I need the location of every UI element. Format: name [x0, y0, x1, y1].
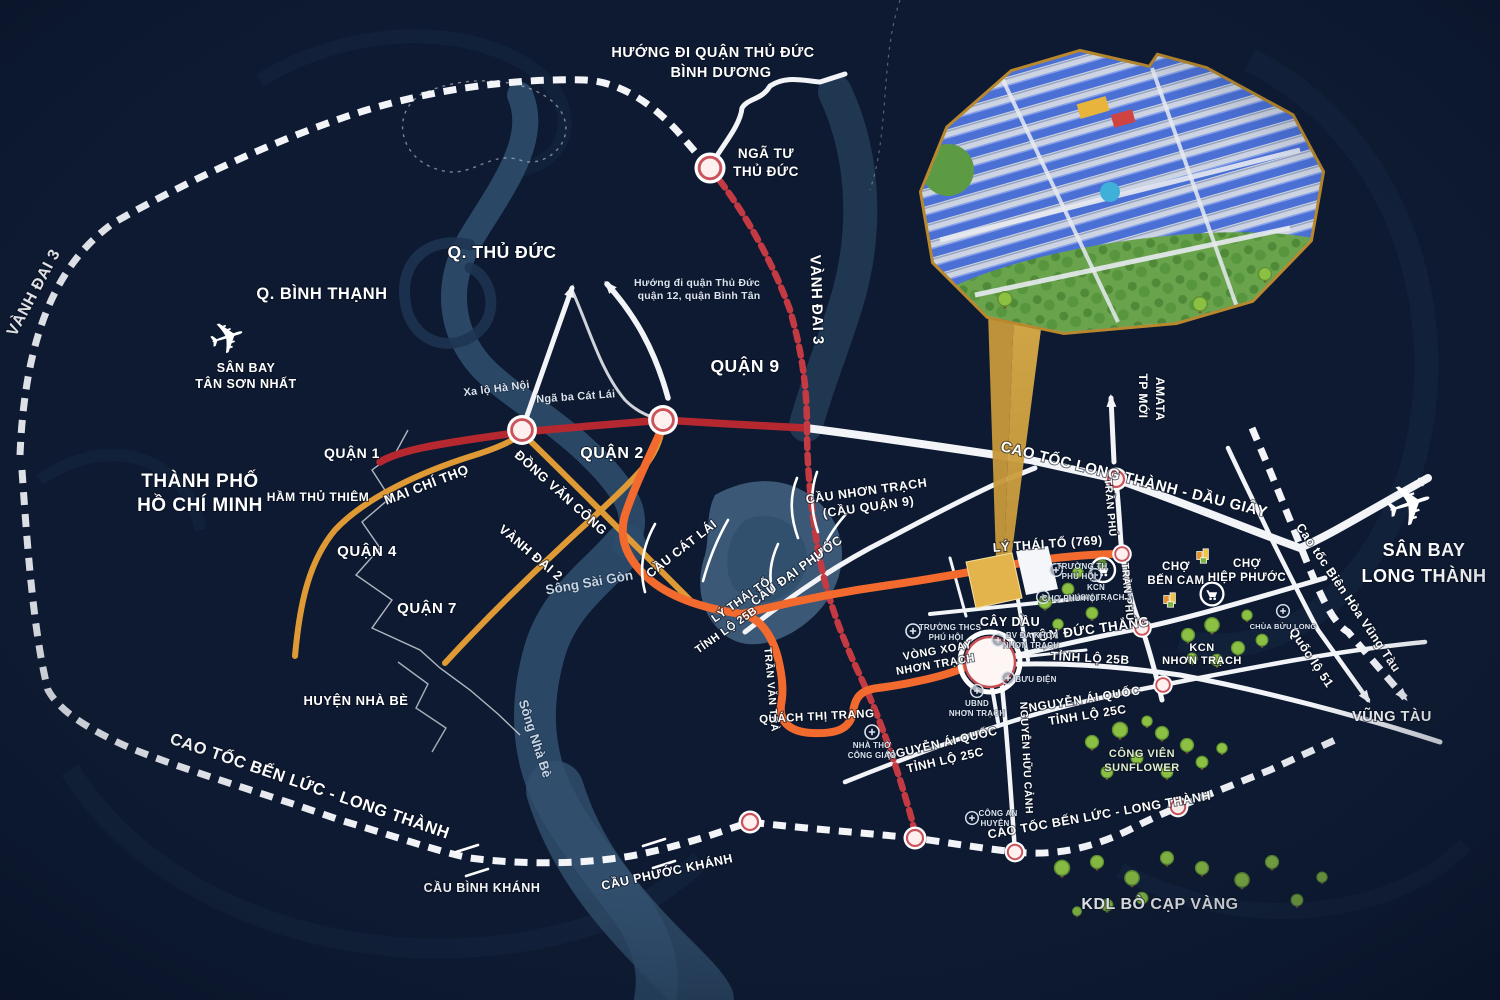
poi-cong-an-1: CÔNG AN	[979, 809, 1018, 818]
road-amata-arrow	[1111, 398, 1114, 462]
direction-north-line1: HƯỚNG ĐI QUẬN THỦ ĐỨC	[611, 43, 814, 61]
poi-cv-sunflower-1: CÔNG VIÊN	[1109, 747, 1175, 760]
direction-vung-tau-label: VŨNG TÀU	[1352, 707, 1432, 725]
city-hcmc-line2: HỒ CHÍ MINH	[137, 494, 263, 516]
junction-nga-tu-thu-duc-2: THỦ ĐỨC	[733, 164, 799, 179]
airport-longthanh-line2: LONG THÀNH	[1362, 565, 1487, 586]
poi-cho-ben-cam-2: BẾN CAM	[1147, 574, 1204, 587]
pagoda-icon	[1277, 605, 1290, 618]
poi-truong-th-2: PHÚ HỘI	[1062, 572, 1097, 581]
map-canvas: ✈ ✈ HƯỚNG ĐI QUẬN THỦ ĐỨC BÌNH DƯƠNG NGÃ…	[0, 0, 1500, 1000]
direction-north-line2: BÌNH DƯƠNG	[670, 64, 771, 81]
government-icon	[971, 685, 984, 698]
poi-nha-tho-1: NHÀ THỜ	[853, 741, 891, 750]
airport-longthanh-line1: SÂN BAY	[1383, 539, 1466, 560]
poi-cho-hiep-phuoc-2: HIỆP PHƯỚC	[1208, 571, 1286, 584]
church-icon	[865, 725, 879, 739]
poi-bv-2: NHƠN TRẠCH	[1003, 641, 1059, 650]
poi-nha-tho-2: CÔNG GIÁO	[848, 751, 896, 760]
district-nha-be: HUYỆN NHÀ BÈ	[304, 693, 409, 708]
tunnel-thu-thiem-label: HẦM THỦ THIÊM	[267, 489, 370, 504]
poi-cho-ben-cam-1: CHỢ	[1162, 561, 1190, 573]
district-quan-2: QUẬN 2	[580, 443, 643, 462]
police-icon	[966, 812, 979, 825]
poi-truong-thcs-1: TRƯỜNG THCS	[919, 623, 982, 632]
project-site-gold	[966, 553, 1022, 608]
poi-cay-dau: CÂY DẦU	[980, 614, 1040, 629]
poi-truong-thcs-2: PHÚ HỘI	[929, 633, 964, 642]
post-office-icon	[1002, 672, 1015, 685]
district-quan-7: QUẬN 7	[397, 599, 457, 617]
airport-tsn-line1: SÂN BAY	[217, 360, 276, 375]
district-quan-1: QUẬN 1	[324, 444, 380, 461]
location-map: ✈ ✈ HƯỚNG ĐI QUẬN THỦ ĐỨC BÌNH DƯƠNG NGÃ…	[0, 0, 1500, 1000]
poi-truong-th-1: TRƯỜNG TH	[1057, 562, 1108, 571]
district-thu-duc: Q. THỦ ĐỨC	[448, 241, 557, 262]
road-amata-line2: AMATA	[1153, 377, 1167, 421]
poi-cong-an-2: HUYỆN	[980, 819, 1009, 828]
guide-q12-line1: Hướng đi quận Thủ Đức	[634, 277, 760, 289]
district-binh-thanh: Q. BÌNH THẠNH	[256, 284, 387, 303]
road-amata-line1: TP MỚI	[1136, 373, 1151, 418]
airport-tsn-line2: TÂN SƠN NHẤT	[195, 376, 296, 391]
bridge-binh-khanh-label: CẦU BÌNH KHÁNH	[424, 880, 541, 895]
poi-bv-1: BV ĐA KHOA	[1006, 631, 1058, 640]
poi-chua-buu-long: CHÙA BỬU LONG	[1250, 622, 1317, 631]
poi-ubnd-1: UBND	[965, 699, 989, 708]
poi-cv-sunflower-2: SUNFLOWER	[1104, 762, 1179, 774]
city-hcmc-line1: THÀNH PHỐ	[141, 470, 258, 492]
road-ring3-mid-label: VÀNH ĐAI 3	[806, 255, 826, 346]
junction-nga-tu-thu-duc-1: NGÃ TƯ	[738, 146, 794, 161]
poi-kdl-bo-cap-vang: KDL BÒ CẠP VÀNG	[1081, 894, 1238, 913]
poi-kcn-nt3-1: KCN	[1087, 583, 1105, 592]
district-quan-4: QUẬN 4	[337, 542, 397, 560]
poi-cho-hiep-phuoc-1: CHỢ	[1233, 558, 1261, 570]
poi-cho-phu-hoi: CHỢ PHÚ HỘI	[1042, 594, 1098, 603]
poi-buu-dien: BƯU ĐIỆN	[1015, 675, 1056, 684]
poi-kcn-nhon-trach-2: NHƠN TRẠCH	[1162, 655, 1242, 667]
guide-q12-line2: quận 12, quận Bình Tân	[638, 290, 761, 302]
poi-kcn-nhon-trach-1: KCN	[1189, 642, 1214, 654]
district-quan-9: QUẬN 9	[710, 355, 779, 376]
poi-ubnd-2: NHƠN TRẠCH	[949, 709, 1005, 718]
